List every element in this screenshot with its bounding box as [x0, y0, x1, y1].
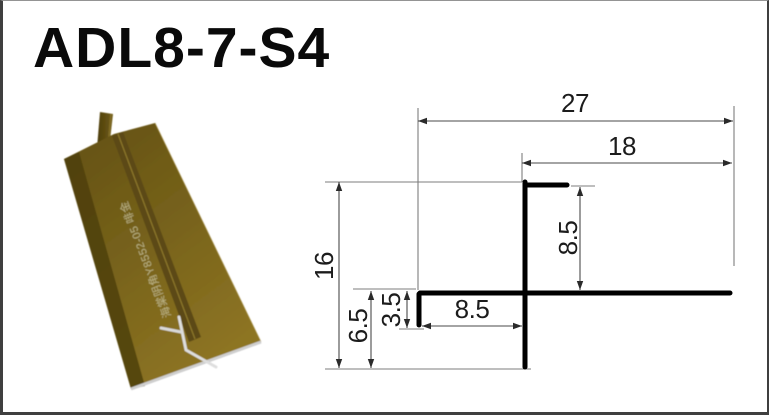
product-photo: 海棠阴角Y8552-05 啡金	[64, 112, 261, 389]
dim-label-6-5: 6.5	[343, 309, 373, 344]
dim-slot-width: 8.5	[422, 294, 522, 329]
dim-total-width: 27	[418, 88, 733, 124]
catalog-card: ADL8-7-S4	[0, 0, 769, 415]
dimension-drawing: 27 18 16 6.5	[309, 88, 734, 369]
profile-cross-section	[419, 182, 730, 367]
dim-label-18: 18	[608, 131, 636, 161]
dim-lower-height: 6.5	[343, 291, 374, 368]
dim-lip-height: 3.5	[376, 291, 410, 328]
dim-total-height: 16	[309, 182, 342, 368]
figure-canvas: 海棠阴角Y8552-05 啡金 27	[3, 1, 769, 415]
dim-label-27: 27	[561, 88, 589, 118]
dim-label-8-5-stem: 8.5	[553, 221, 583, 256]
dim-label-8-5-slot: 8.5	[455, 294, 490, 324]
dim-label-16: 16	[309, 252, 339, 280]
dim-stem-height: 8.5	[553, 187, 583, 290]
dim-label-3-5: 3.5	[376, 293, 406, 328]
dim-right-width: 18	[522, 131, 732, 166]
